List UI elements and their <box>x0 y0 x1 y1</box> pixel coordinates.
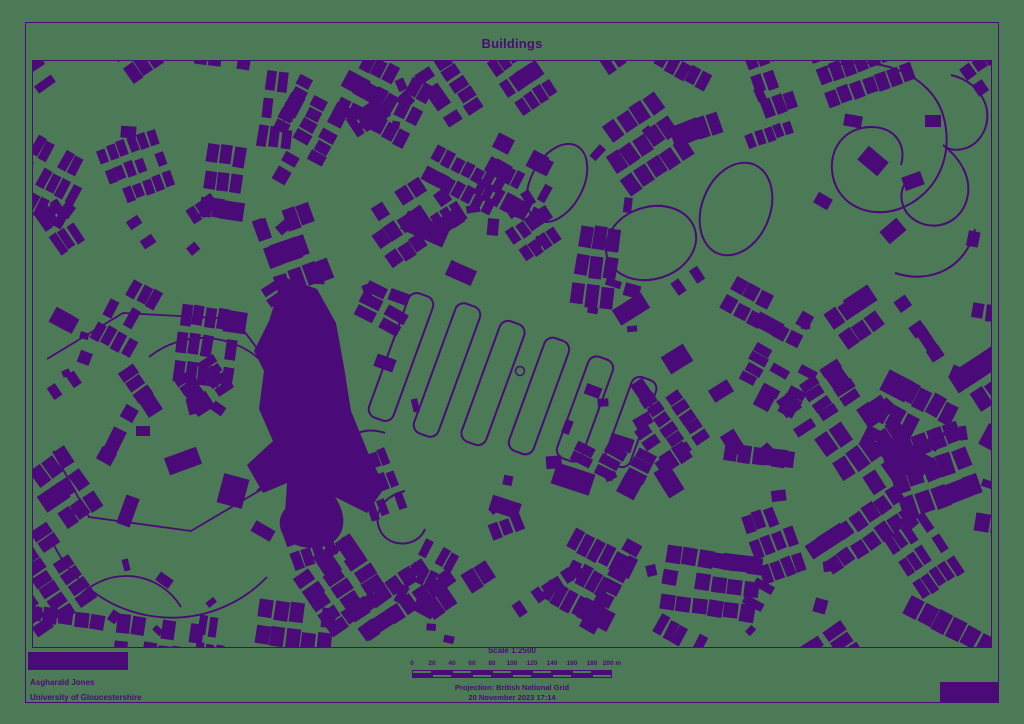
scale-tick-label: 0 <box>410 660 414 667</box>
author-name: Asgharald Jones <box>30 675 142 690</box>
scale-tick-label: 80 <box>488 660 495 667</box>
scale-tick-label: 180 <box>587 660 598 667</box>
scale-tick-label: 20 <box>428 660 435 667</box>
page-background: { "colors": { "background": "#4d7a56", "… <box>0 0 1024 724</box>
author-block: Asgharald Jones University of Gloucester… <box>30 675 142 705</box>
scale-tick-label: 60 <box>468 660 475 667</box>
scale-bar-segment <box>412 674 432 678</box>
datetime-label: 20 November 2023 17:14 <box>372 693 652 702</box>
scale-bar-segment <box>592 674 612 678</box>
scale-bar-segment <box>512 674 532 678</box>
scale-area: Scale 1:2500 020406080100120140160180200… <box>372 646 652 702</box>
scale-title: Scale 1:2500 <box>372 646 652 655</box>
projection-label: Projection: British National Grid <box>372 683 652 692</box>
buildings-map <box>33 61 991 647</box>
scale-bar-segment <box>532 674 552 678</box>
scale-tick-label: 40 <box>448 660 455 667</box>
scale-tick-label: 160 <box>567 660 578 667</box>
scale-bar-segment <box>472 674 492 678</box>
scale-bar: 020406080100120140160180200 m <box>412 660 612 680</box>
scale-tick-label: 200 m <box>603 660 621 667</box>
scale-bar-segment <box>452 674 472 678</box>
scale-bar-segment <box>552 674 572 678</box>
footer-right-swatch <box>940 682 999 703</box>
scale-bar-segment <box>432 674 452 678</box>
map-frame <box>32 60 992 648</box>
scale-tick-label: 100 <box>507 660 518 667</box>
scale-bar-segment <box>572 674 592 678</box>
scale-tick-label: 120 <box>527 660 538 667</box>
organization-name: University of Gloucestershire <box>30 690 142 705</box>
scale-bar-segment <box>492 674 512 678</box>
scale-tick-label: 140 <box>547 660 558 667</box>
page-title: Buildings <box>0 36 1024 51</box>
legend-swatch <box>28 652 128 670</box>
